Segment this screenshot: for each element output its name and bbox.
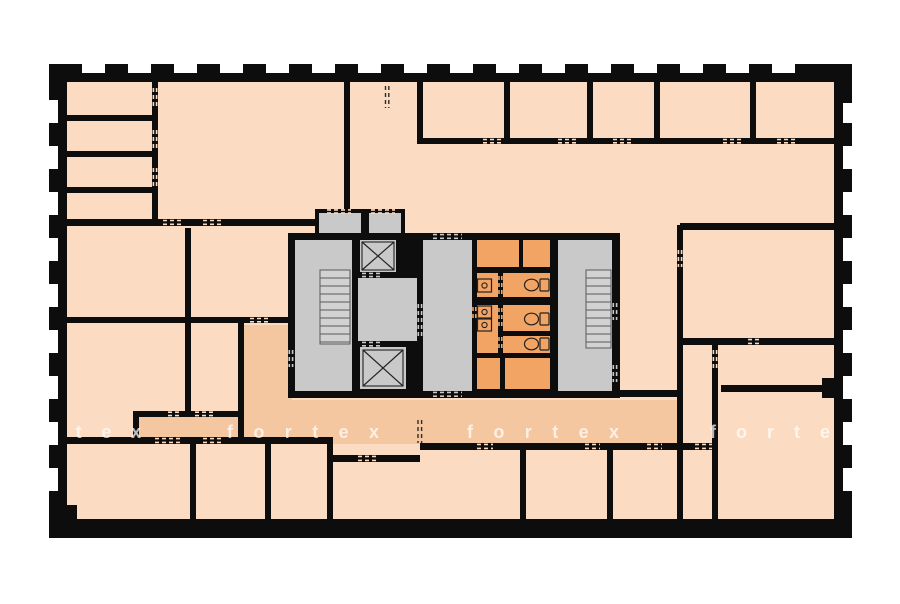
watermark-text: forte	[710, 422, 850, 442]
wc-room-small-1	[477, 240, 519, 267]
toilet-icon	[525, 338, 550, 350]
sink-icon	[478, 279, 492, 292]
floor-plan-canvas: rtex fortex fortex forte	[0, 0, 900, 604]
sink-icon	[478, 306, 492, 318]
window-strip-north-icon	[82, 64, 818, 73]
elevator-shaft-north	[360, 240, 396, 272]
elevator-shaft-south	[360, 347, 406, 389]
watermark-text: rtex	[49, 422, 161, 442]
wc-area	[477, 240, 550, 389]
vestibule-north-2	[369, 213, 401, 233]
building-core	[288, 209, 620, 398]
floor-plan: rtex fortex fortex forte	[0, 0, 900, 604]
wc-room-small-4	[505, 358, 550, 389]
window-strip-west-icon	[49, 100, 58, 505]
exterior-wall-south	[49, 519, 852, 538]
stairs-west-icon	[320, 270, 350, 344]
window-strip-east-icon	[843, 103, 852, 505]
vestibule-north-1	[319, 213, 361, 233]
wall-step	[67, 505, 77, 519]
toilet-icon	[525, 279, 550, 291]
sink-icon	[478, 319, 492, 331]
toilet-icon	[525, 313, 550, 325]
stairs-east-icon	[586, 270, 611, 348]
wc-room-small-3	[477, 358, 500, 389]
elevator-lobby	[358, 278, 417, 341]
wc-room-small-2	[523, 240, 550, 267]
watermark-text: fortex	[227, 422, 399, 442]
watermark-text: fortex	[467, 422, 639, 442]
core-corridor	[423, 240, 472, 391]
